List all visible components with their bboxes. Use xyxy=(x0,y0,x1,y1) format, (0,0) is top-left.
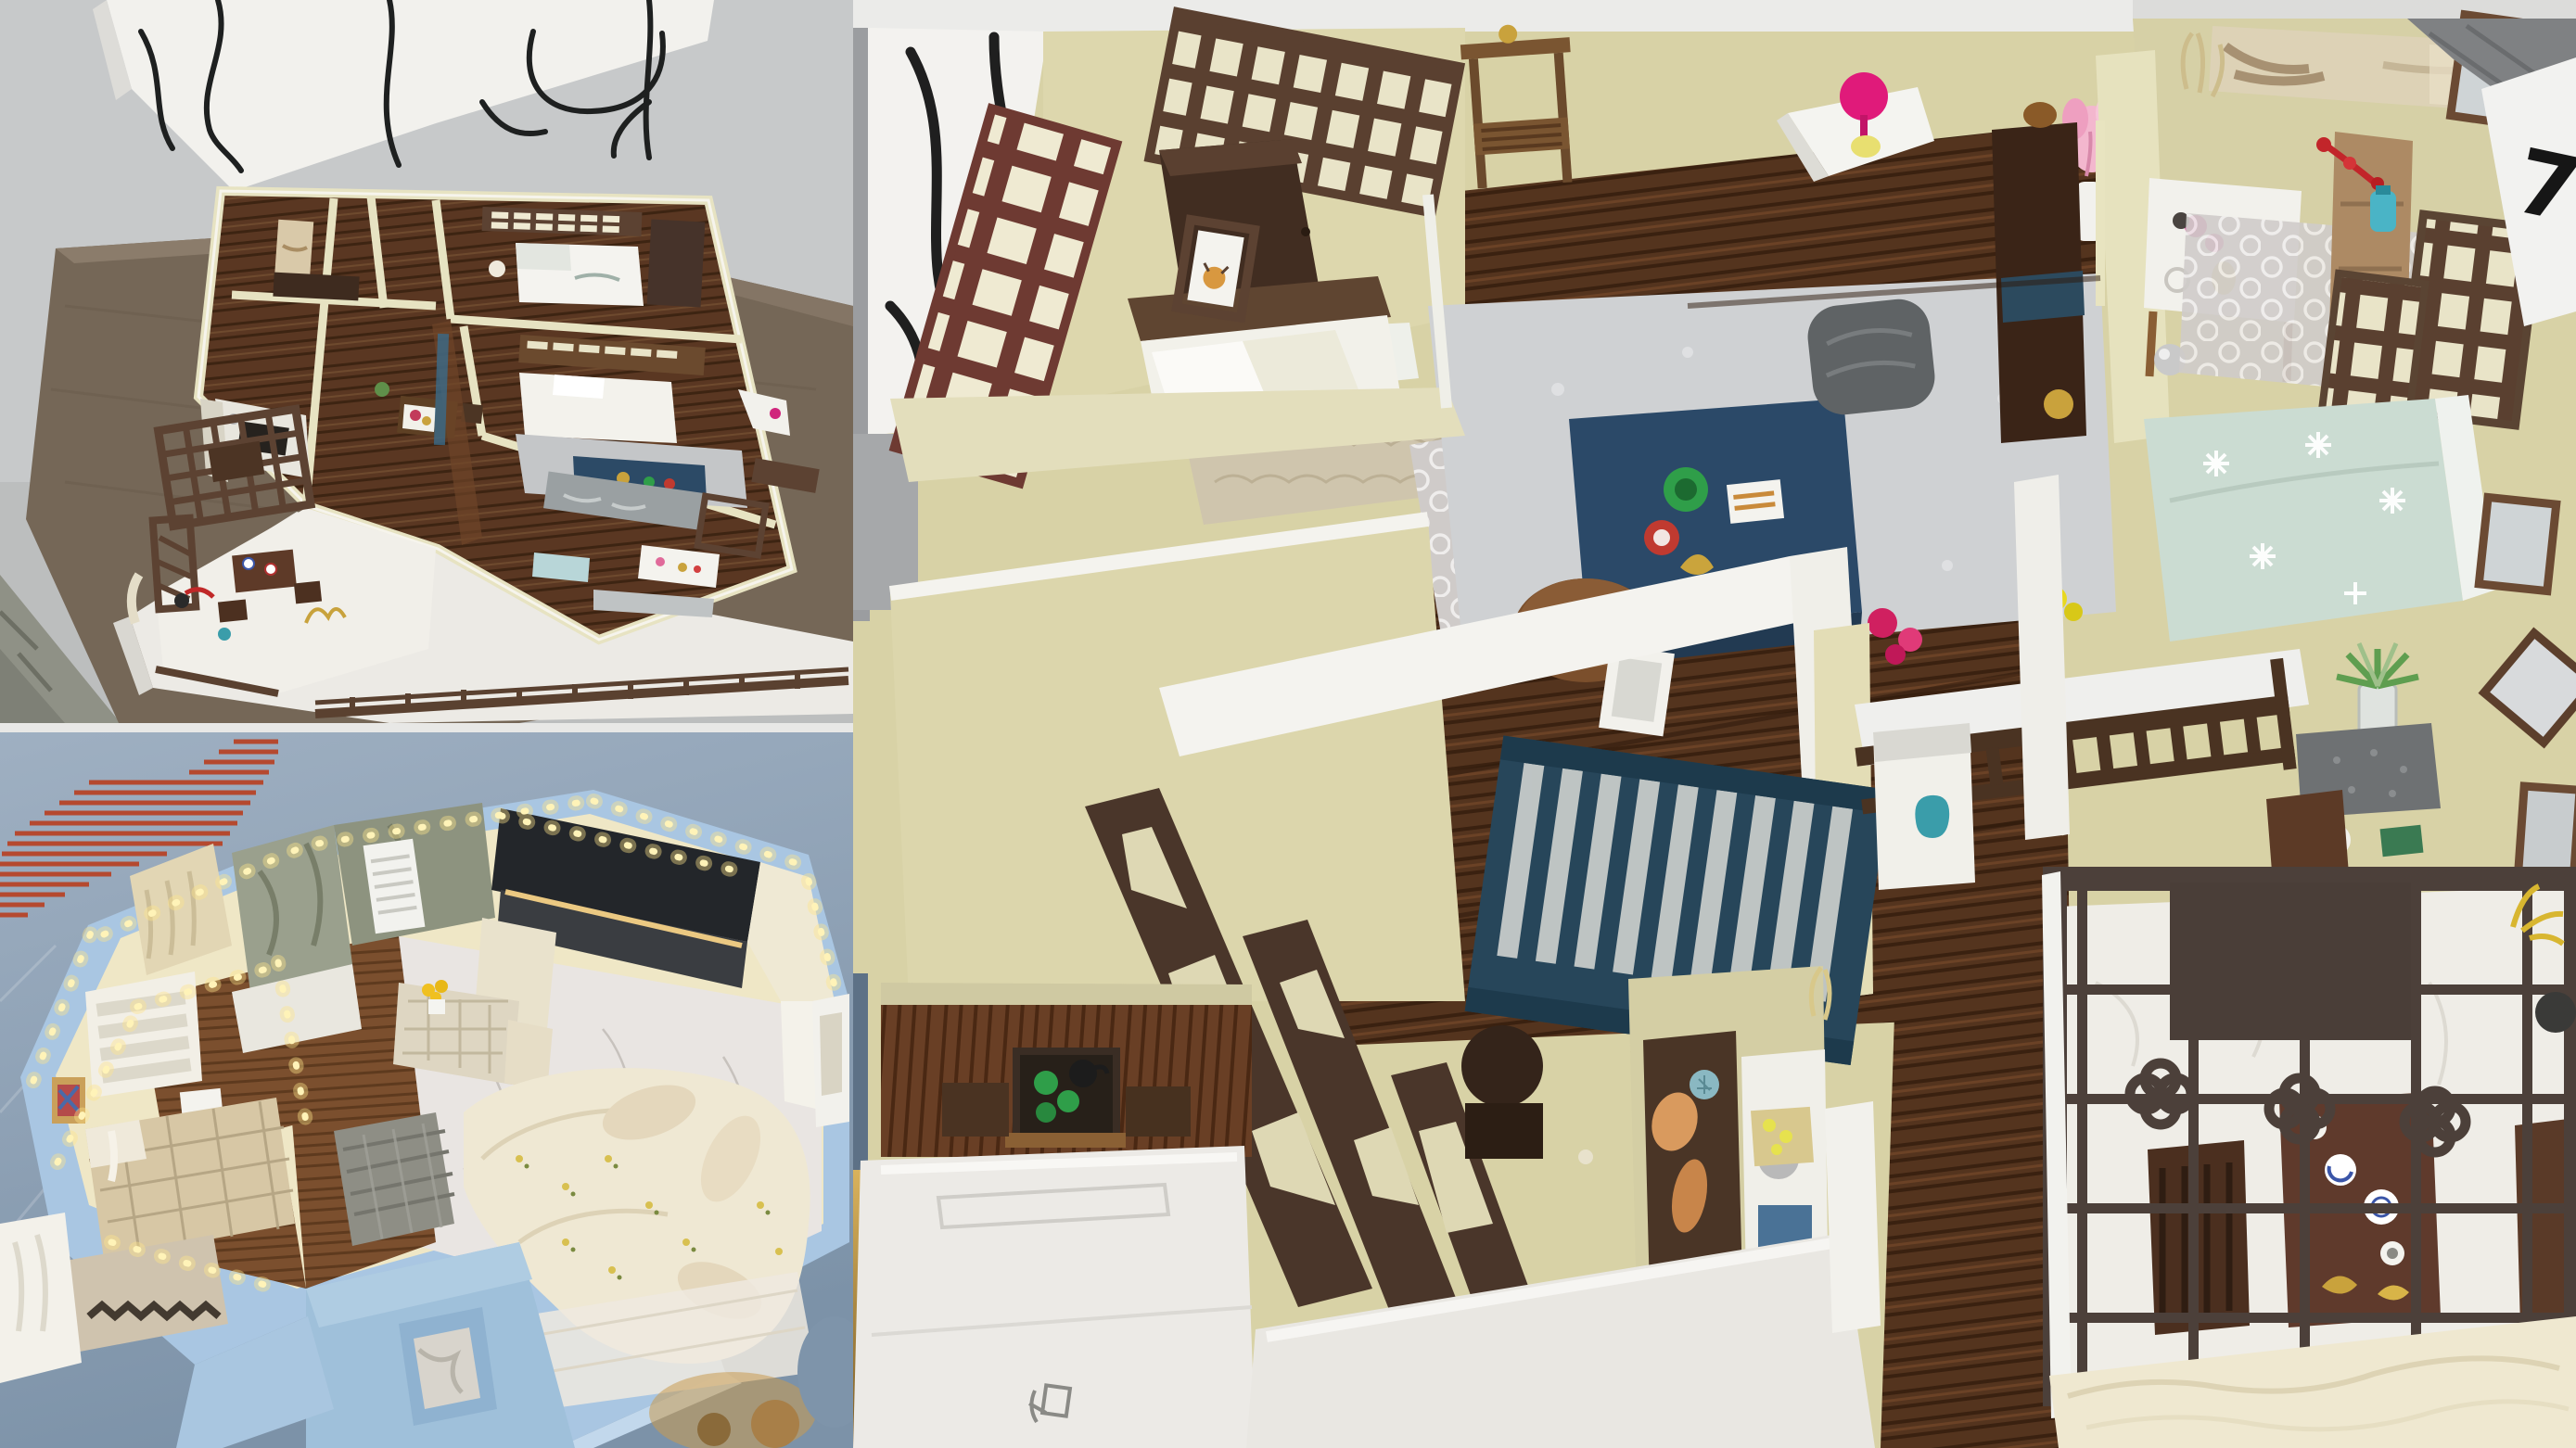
photo-model-illuminated xyxy=(0,723,853,1448)
photo-model-closeup: 7 xyxy=(853,0,2576,1448)
collage-left-column xyxy=(0,0,853,1448)
tall-dark-cabinet xyxy=(1992,102,2086,443)
tea-table xyxy=(1005,1048,1126,1148)
teal-jug xyxy=(1915,795,1949,838)
tea-stool-left xyxy=(942,1083,1009,1137)
gray-pouf xyxy=(1804,296,1938,417)
photo-model-overview xyxy=(0,0,853,723)
green-book xyxy=(2380,825,2424,857)
tea-nook xyxy=(881,983,1252,1157)
white-box-cabinet xyxy=(1873,723,1975,890)
photo-collage: 7 xyxy=(0,0,2576,1448)
courtyard xyxy=(1881,834,2576,1448)
woven-bench xyxy=(334,1112,454,1246)
tea-stool-right xyxy=(1126,1086,1191,1137)
courtyard-pergola xyxy=(2055,879,2576,1394)
black-vase xyxy=(2535,992,2576,1033)
